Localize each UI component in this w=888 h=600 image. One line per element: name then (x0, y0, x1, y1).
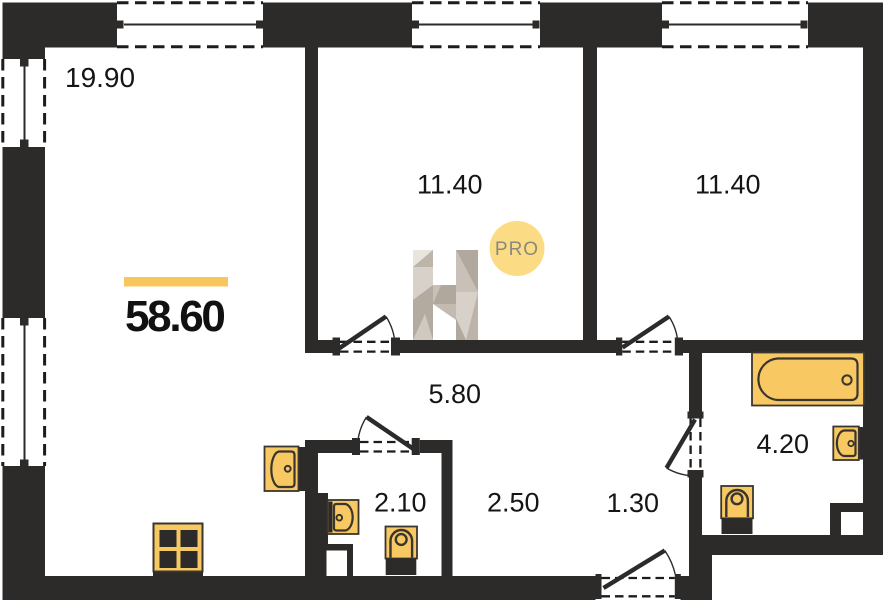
svg-text:58.60: 58.60 (125, 292, 224, 341)
svg-text:PRO: PRO (495, 239, 539, 260)
svg-text:1.30: 1.30 (607, 488, 660, 518)
svg-text:19.90: 19.90 (65, 62, 135, 93)
svg-text:11.40: 11.40 (417, 170, 483, 200)
svg-text:4.20: 4.20 (757, 429, 810, 459)
svg-text:5.80: 5.80 (429, 379, 482, 409)
svg-text:2.50: 2.50 (487, 488, 540, 518)
svg-text:11.40: 11.40 (695, 170, 761, 200)
svg-text:2.10: 2.10 (374, 488, 427, 518)
